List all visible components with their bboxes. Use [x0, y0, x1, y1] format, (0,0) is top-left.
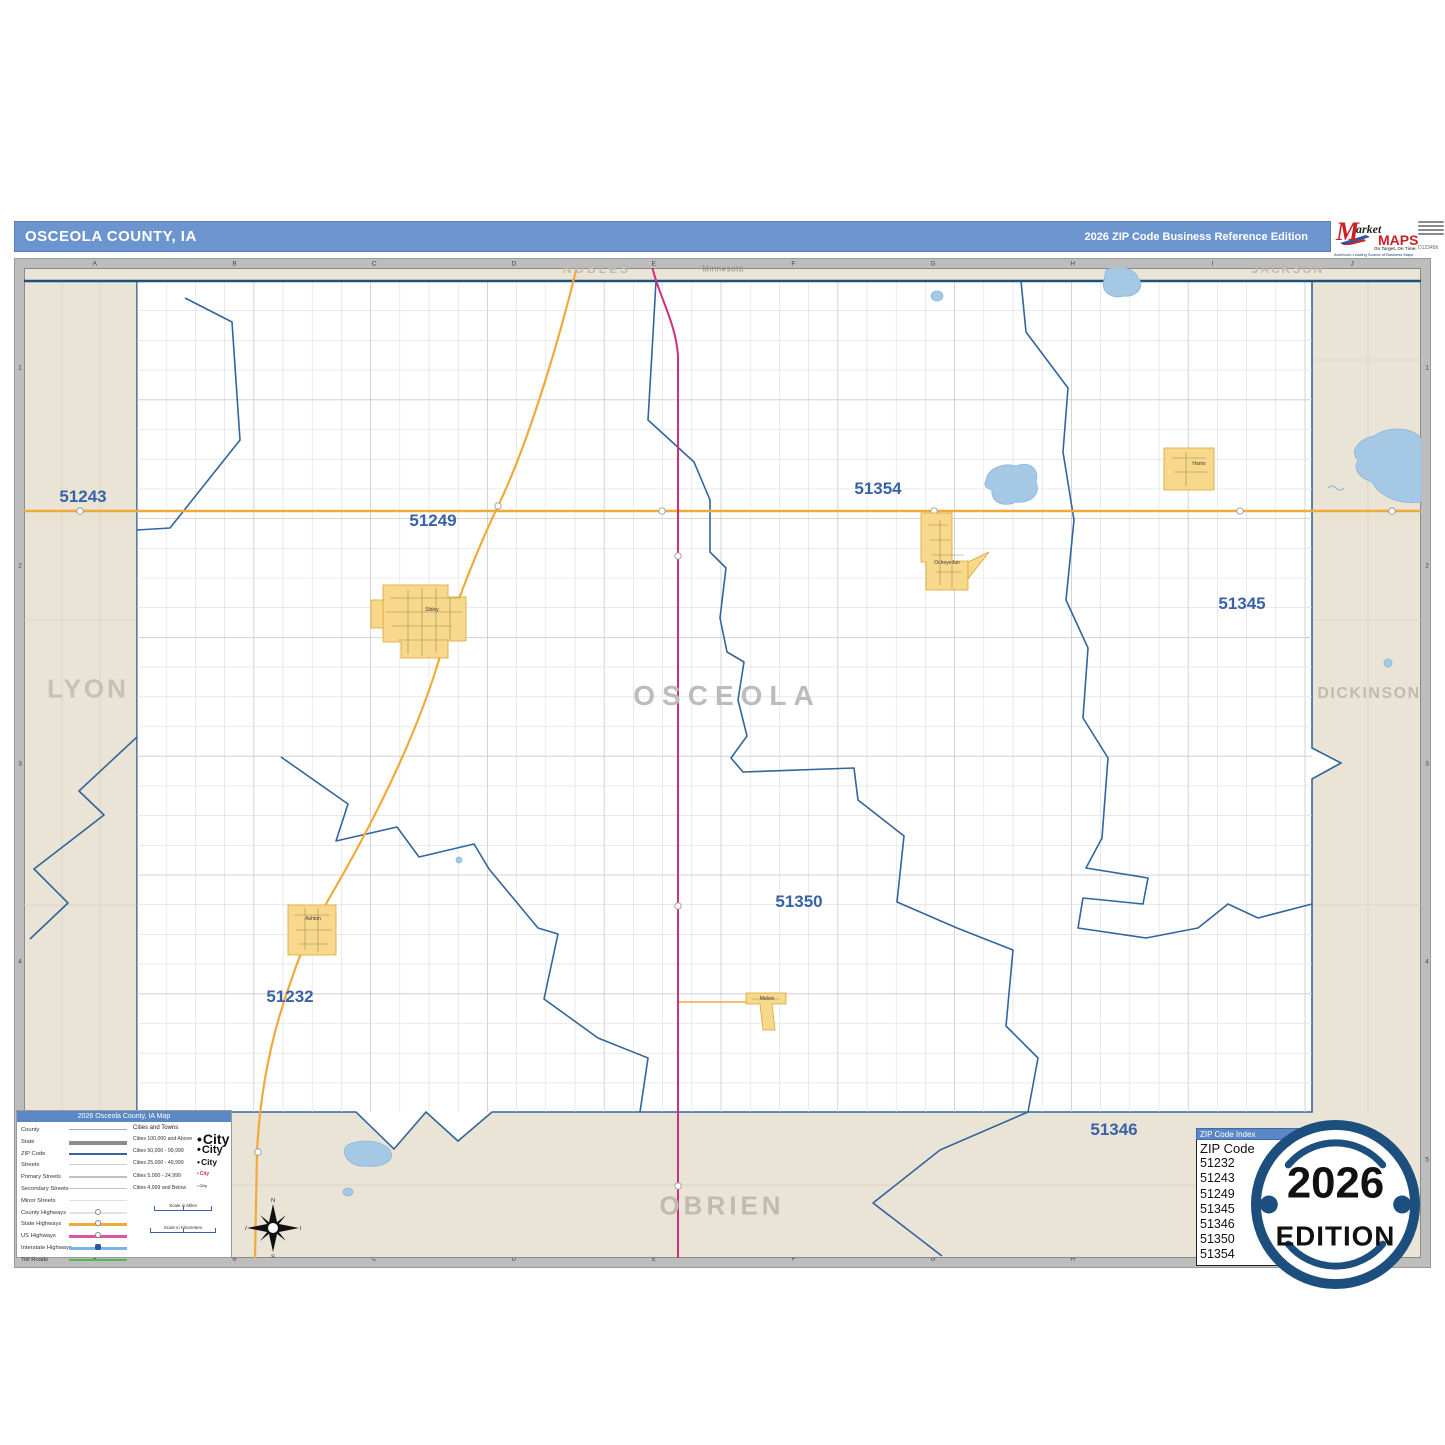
city-class-label: Cities 5,000 - 24,999: [133, 1173, 181, 1179]
zip-label-51345: 51345: [1218, 594, 1265, 614]
legend-item-sample: [69, 1259, 127, 1262]
svg-text:N: N: [271, 1198, 275, 1204]
grid-number-2: 2: [1425, 563, 1429, 570]
legend-item-label: Interstate Highways: [21, 1245, 72, 1251]
badge-year: 2026: [1287, 1159, 1384, 1208]
city-class-label: Cities 100,000 and Above: [133, 1136, 192, 1142]
legend-route-marker: [95, 1244, 101, 1250]
city-class-sample: City: [197, 1157, 217, 1167]
city-class-label: Cities 25,000 - 49,999: [133, 1160, 184, 1166]
county-boundary: [137, 281, 1341, 1149]
zip-label-51354: 51354: [854, 479, 901, 499]
grid-number-3: 3: [18, 761, 22, 768]
legend-item-label: US Highways: [21, 1233, 56, 1239]
stream: [1328, 486, 1344, 490]
city-class-sample: City: [197, 1183, 207, 1188]
logo-subtitle: America's Leading Source of Business Map…: [1334, 252, 1413, 257]
edition-badge: 2026 EDITION: [1247, 1116, 1424, 1293]
legend-item-sample: [69, 1129, 127, 1130]
zip-label-51346: 51346: [1090, 1120, 1137, 1140]
legend-route-marker: [95, 1232, 101, 1238]
legend-item-sample: [69, 1176, 127, 1178]
neighbor-county-dickinson: DICKINSON: [1317, 685, 1420, 703]
grid-number-3: 3: [1425, 761, 1429, 768]
legend-item-label: County: [21, 1127, 39, 1133]
logo-tagline: On Target. On Time.: [1374, 246, 1417, 251]
zip-label-51232: 51232: [266, 987, 313, 1007]
zip-label-51350: 51350: [775, 892, 822, 912]
title-bar: OSCEOLA COUNTY, IA 2026 ZIP Code Busines…: [14, 221, 1331, 252]
city-label-sibley: Sibley: [425, 607, 439, 613]
legend-route-marker: [95, 1220, 101, 1226]
legend-item-sample: [69, 1200, 127, 1201]
svg-text:W: W: [245, 1226, 247, 1232]
legend-panel: 2026 Osceola County, IA Map CountyStateZ…: [16, 1110, 232, 1258]
city-class-sample: City: [197, 1144, 223, 1156]
city-label-ocheyedan: Ocheyedan: [934, 560, 960, 566]
grid-number-1: 1: [18, 365, 22, 372]
legend-title: 2026 Osceola County, IA Map: [17, 1111, 231, 1122]
svg-text:S: S: [271, 1255, 275, 1258]
grid-letter-D: D: [512, 261, 517, 268]
legend-item-sample: [69, 1223, 127, 1226]
grid-number-5: 5: [1425, 1157, 1429, 1164]
page-title: OSCEOLA COUNTY, IA: [25, 228, 197, 245]
badge-left-dot: [1260, 1196, 1278, 1214]
legend-item-label: State Highways: [21, 1221, 61, 1227]
zip-label-51243: 51243: [59, 487, 106, 507]
county-name-label: OSCEOLA: [633, 680, 820, 712]
marketmaps-logo: M arket MAPS On Target. On Time. America…: [1334, 219, 1445, 257]
badge-edition: EDITION: [1276, 1220, 1396, 1251]
legend-item-sample: [69, 1235, 127, 1238]
legend-item-sample: [69, 1247, 127, 1250]
grid-letter-A: A: [93, 261, 97, 268]
legend-item-sample: [69, 1153, 127, 1155]
legend-item-sample: [69, 1188, 127, 1189]
legend-route-marker: [95, 1209, 101, 1215]
zip-label-51249: 51249: [409, 511, 456, 531]
legend-item-label: Minor Streets: [21, 1198, 55, 1204]
legend-item-label: Secondary Streets: [21, 1186, 69, 1192]
scale-km-bar: [150, 1223, 216, 1233]
grid-letter-J: J: [1351, 261, 1354, 268]
grid-letter-I: I: [1212, 261, 1214, 268]
neighbor-state-minnesota: Minnesota: [702, 265, 743, 274]
legend-item-label: Toll Roads: [21, 1257, 48, 1263]
neighbor-county-lyon: LYON: [47, 674, 129, 705]
grid-number-1: 1: [1425, 365, 1429, 372]
grid-number-4: 4: [18, 959, 22, 966]
legend-item-label: Streets: [21, 1162, 39, 1168]
legend-item-sample: [69, 1141, 127, 1145]
legend-item-sample: [69, 1164, 127, 1165]
city-label-melvin: Melvin: [760, 996, 774, 1002]
legend-item-label: State: [21, 1139, 35, 1145]
compass-rose-icon: N S W E: [245, 1198, 301, 1258]
svg-text:E: E: [300, 1226, 301, 1232]
city-class-label: Cities 50,000 - 99,999: [133, 1148, 184, 1154]
grid-letter-E: E: [651, 261, 655, 268]
legend-item-sample: [69, 1212, 127, 1214]
city-class-label: Cities 4,999 and Below: [133, 1185, 186, 1191]
city-label-ashton: Ashton: [305, 916, 321, 922]
grid-letter-G: G: [931, 261, 936, 268]
grid-letter-H: H: [1070, 261, 1075, 268]
grid-number-4: 4: [1425, 959, 1429, 966]
city-label-harris: Harris: [1192, 461, 1205, 467]
neighbor-county-jackson: JACKSON: [1252, 262, 1325, 276]
legend-item-label: Primary Streets: [21, 1174, 61, 1180]
scale-miles-bar: [154, 1201, 212, 1211]
legend-cities-header: Cities and Towns: [133, 1125, 178, 1131]
legend-item-label: County Highways: [21, 1210, 66, 1216]
grid-letter-B: B: [232, 261, 236, 268]
legend-item-label: ZIP Code: [21, 1151, 45, 1157]
neighbor-county-obrien: OBRIEN: [659, 1191, 784, 1222]
grid-letter-F: F: [791, 261, 795, 268]
city-class-sample: City: [197, 1171, 209, 1177]
edition-label: 2026 ZIP Code Business Reference Edition: [1084, 231, 1308, 243]
logo-product-code: D123456: [1418, 245, 1438, 251]
grid-number-2: 2: [18, 563, 22, 570]
grid-letter-C: C: [372, 261, 377, 268]
county-map-art: [24, 268, 1421, 1258]
neighbor-county-nobles: NOBLES: [563, 262, 631, 276]
badge-right-dot: [1393, 1196, 1411, 1214]
